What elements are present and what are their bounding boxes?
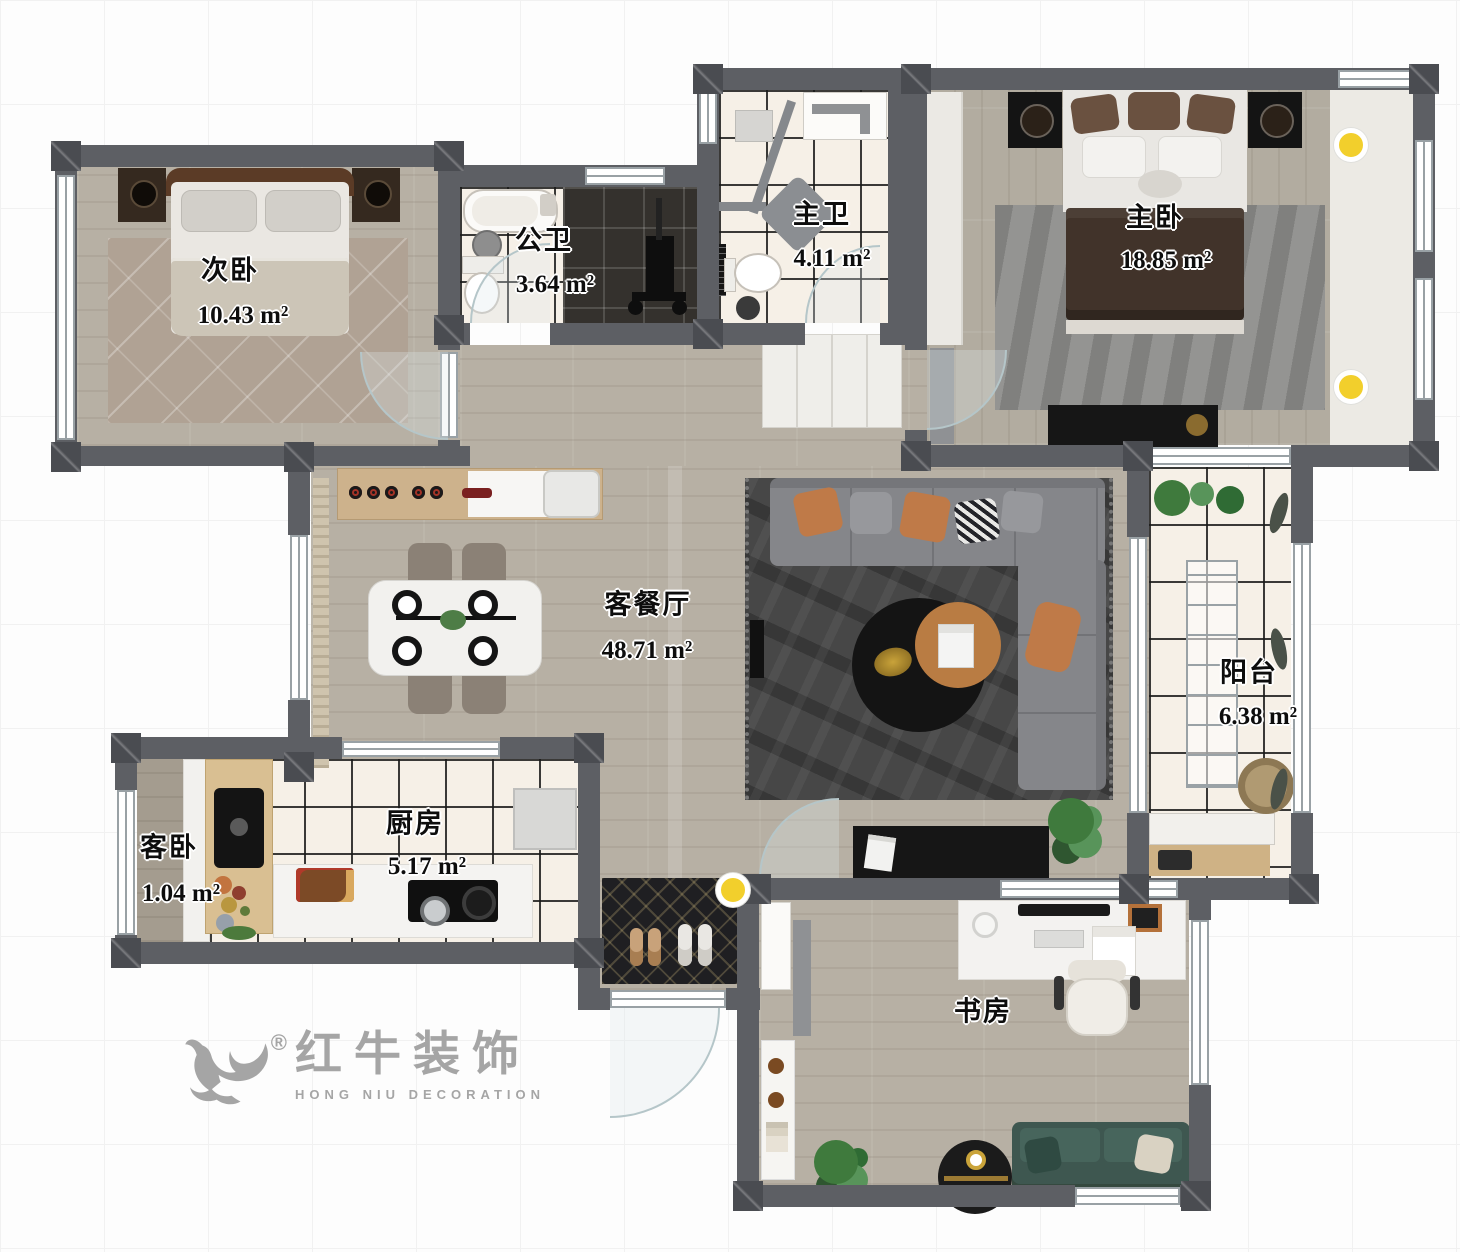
window [290, 535, 308, 700]
pillow [953, 497, 1000, 544]
wall-post [1289, 874, 1319, 904]
light-dot-icon [1334, 370, 1368, 404]
pan [420, 896, 450, 926]
monitor [1018, 904, 1110, 916]
wall-post [51, 442, 81, 472]
chair-arm [1130, 976, 1140, 1010]
room-area-master-bathroom: 4.11 m² [794, 245, 871, 273]
room-area-kitchen: 5.17 m² [388, 853, 466, 881]
floor-lamp [750, 620, 764, 678]
wall [578, 737, 600, 1010]
window [1000, 880, 1178, 898]
room-label-master-bedroom: 主卧 [1126, 196, 1184, 235]
pillow [1082, 136, 1146, 178]
plant [1048, 798, 1094, 844]
room-area-secondary-bedroom: 10.43 m² [198, 302, 289, 330]
pillow [792, 486, 844, 538]
wall-post [693, 64, 723, 94]
wall [1291, 445, 1313, 543]
speaker-icon [1020, 104, 1054, 138]
decor-vase [768, 1058, 784, 1074]
closet-strip-master [927, 92, 963, 345]
balcony-window [1129, 537, 1147, 813]
logo-title-cn: 红牛装饰 [295, 1032, 545, 1079]
plant [814, 1140, 858, 1184]
fitness-pole [656, 198, 662, 240]
entry-door-sill [610, 990, 726, 1008]
pan [462, 886, 496, 920]
keyboard [1034, 930, 1084, 948]
shower-tray [735, 110, 773, 142]
wardrobe [762, 334, 902, 428]
wall-post [693, 319, 723, 349]
wine-bottle-dot [430, 486, 443, 499]
sofa-chaise [1018, 560, 1106, 790]
stool [736, 296, 760, 320]
dining-chair [462, 670, 506, 714]
chair-arm [1054, 976, 1064, 1010]
tray-card [938, 624, 974, 668]
wall-post [733, 1181, 763, 1211]
faucet-icon [540, 194, 556, 216]
light-dot-icon [716, 873, 750, 907]
water-dispenser [543, 470, 600, 518]
bed-foot [1066, 320, 1244, 334]
room-label-secondary-bedroom: 次卧 [201, 249, 259, 288]
table-handle [944, 1176, 1008, 1181]
wall-post [1119, 874, 1149, 904]
plate [468, 636, 498, 666]
window [117, 790, 135, 935]
room-area-living-dining: 48.71 m² [602, 637, 693, 665]
wall [438, 440, 460, 466]
wall [905, 90, 927, 350]
gray-cabinet [793, 920, 811, 1036]
logo-title-en: HONG NIU DECORATION [295, 1087, 545, 1102]
wall-post [1181, 1181, 1211, 1211]
wall-post [284, 752, 314, 782]
room-label-master-bathroom: 主卫 [793, 193, 851, 232]
greens [222, 926, 256, 940]
wall-post [284, 442, 314, 472]
room-label-public-bathroom: 公卫 [515, 219, 573, 258]
wall-post [1409, 64, 1439, 94]
balcony-marble-bench [1149, 813, 1275, 845]
window [1415, 140, 1433, 252]
window [342, 741, 500, 757]
bed-runner [1138, 170, 1182, 198]
wall [55, 446, 470, 466]
speaker-icon [1260, 104, 1294, 138]
wall-post [1409, 441, 1439, 471]
pillow [898, 490, 951, 543]
plant [1154, 480, 1190, 516]
table-plant [440, 610, 466, 630]
plate [392, 590, 422, 620]
window [1191, 920, 1209, 1085]
decor-bowl [1186, 414, 1208, 436]
window [57, 175, 75, 440]
wall [737, 878, 759, 1207]
pillow [1186, 93, 1237, 135]
registered-mark: ® [271, 1030, 287, 1056]
faucet-icon [230, 818, 248, 836]
slipper [698, 924, 712, 966]
logo-bull-icon: ® [183, 1032, 279, 1112]
wall-post [434, 315, 464, 345]
speaker-icon [364, 180, 392, 208]
pillow [1023, 1135, 1062, 1174]
bench-decor [1158, 850, 1192, 870]
room-label-kitchen: 厨房 [386, 802, 444, 841]
vanity-l-shape [860, 104, 870, 134]
pillow [1070, 93, 1121, 135]
plate [468, 590, 498, 620]
balcony-slider-window [1149, 447, 1291, 465]
vanity-counter [803, 92, 887, 140]
wall-post [51, 141, 81, 171]
desk-chair [1066, 978, 1128, 1036]
room-area-guest-bedroom: 1.04 m² [142, 880, 220, 908]
wall-post [901, 64, 931, 94]
window [1415, 278, 1433, 400]
desk-lamp [972, 912, 998, 938]
basin-cabinet [761, 902, 791, 990]
pillow [1128, 92, 1180, 130]
window [1338, 70, 1412, 88]
plank-seam [668, 466, 682, 902]
wine-bottle-dot [412, 486, 425, 499]
pillow [850, 492, 892, 534]
slipper [630, 928, 643, 966]
room-area-public-bathroom: 3.64 m² [516, 271, 594, 299]
toilet-bowl [734, 253, 782, 293]
wine-bottle-dot [349, 486, 362, 499]
room-label-study: 书房 [954, 990, 1012, 1029]
wall [1413, 68, 1435, 467]
floorplan-canvas: 次卧 10.43 m² 公卫 3.64 m² 主卫 4.11 m² 主卧 18.… [0, 0, 1460, 1252]
fitness-wheel [628, 300, 643, 315]
wall [737, 1185, 1075, 1207]
room-label-balcony: 阳台 [1220, 651, 1278, 690]
room-label-living-dining: 客餐厅 [605, 583, 692, 622]
cup [966, 1150, 986, 1170]
wall [55, 145, 460, 167]
fridge [513, 788, 577, 850]
wall-post [111, 938, 141, 968]
wall [115, 942, 600, 964]
cutting-board [296, 868, 354, 902]
room-area-master-bedroom: 18.85 m² [1121, 247, 1212, 275]
magazine [864, 834, 896, 872]
window [1075, 1187, 1180, 1205]
wine-bottle-dot [367, 486, 380, 499]
light-dot-icon [1334, 128, 1368, 162]
pillow [1000, 490, 1044, 534]
wall [697, 68, 910, 90]
wall [905, 445, 1149, 467]
window [585, 167, 665, 185]
room-area-balcony: 6.38 m² [1219, 703, 1297, 731]
wall-post [434, 141, 464, 171]
room-label-guest-bedroom: 客卧 [140, 826, 198, 865]
dining-chair [408, 670, 452, 714]
wall-post [901, 441, 931, 471]
curtain-strip [313, 478, 329, 768]
wall-post [111, 733, 141, 763]
wall [578, 988, 610, 1010]
pillow [181, 190, 257, 232]
balcony-window [1293, 543, 1311, 813]
wall-post [1123, 441, 1153, 471]
wine-bottle [462, 488, 492, 498]
books [766, 1122, 788, 1152]
slipper [648, 928, 661, 966]
speaker-icon [130, 180, 158, 208]
pillow [265, 190, 341, 232]
wall-post [574, 938, 604, 968]
pillow [1133, 1133, 1175, 1175]
plate [392, 636, 422, 666]
logo: ® 红牛装饰 HONG NIU DECORATION [183, 1032, 545, 1112]
wall-post [574, 733, 604, 763]
window [699, 92, 717, 144]
slipper [678, 924, 692, 966]
fitness-wheel [672, 300, 687, 315]
fitness-machine [646, 236, 674, 292]
wine-bottle-dot [385, 486, 398, 499]
